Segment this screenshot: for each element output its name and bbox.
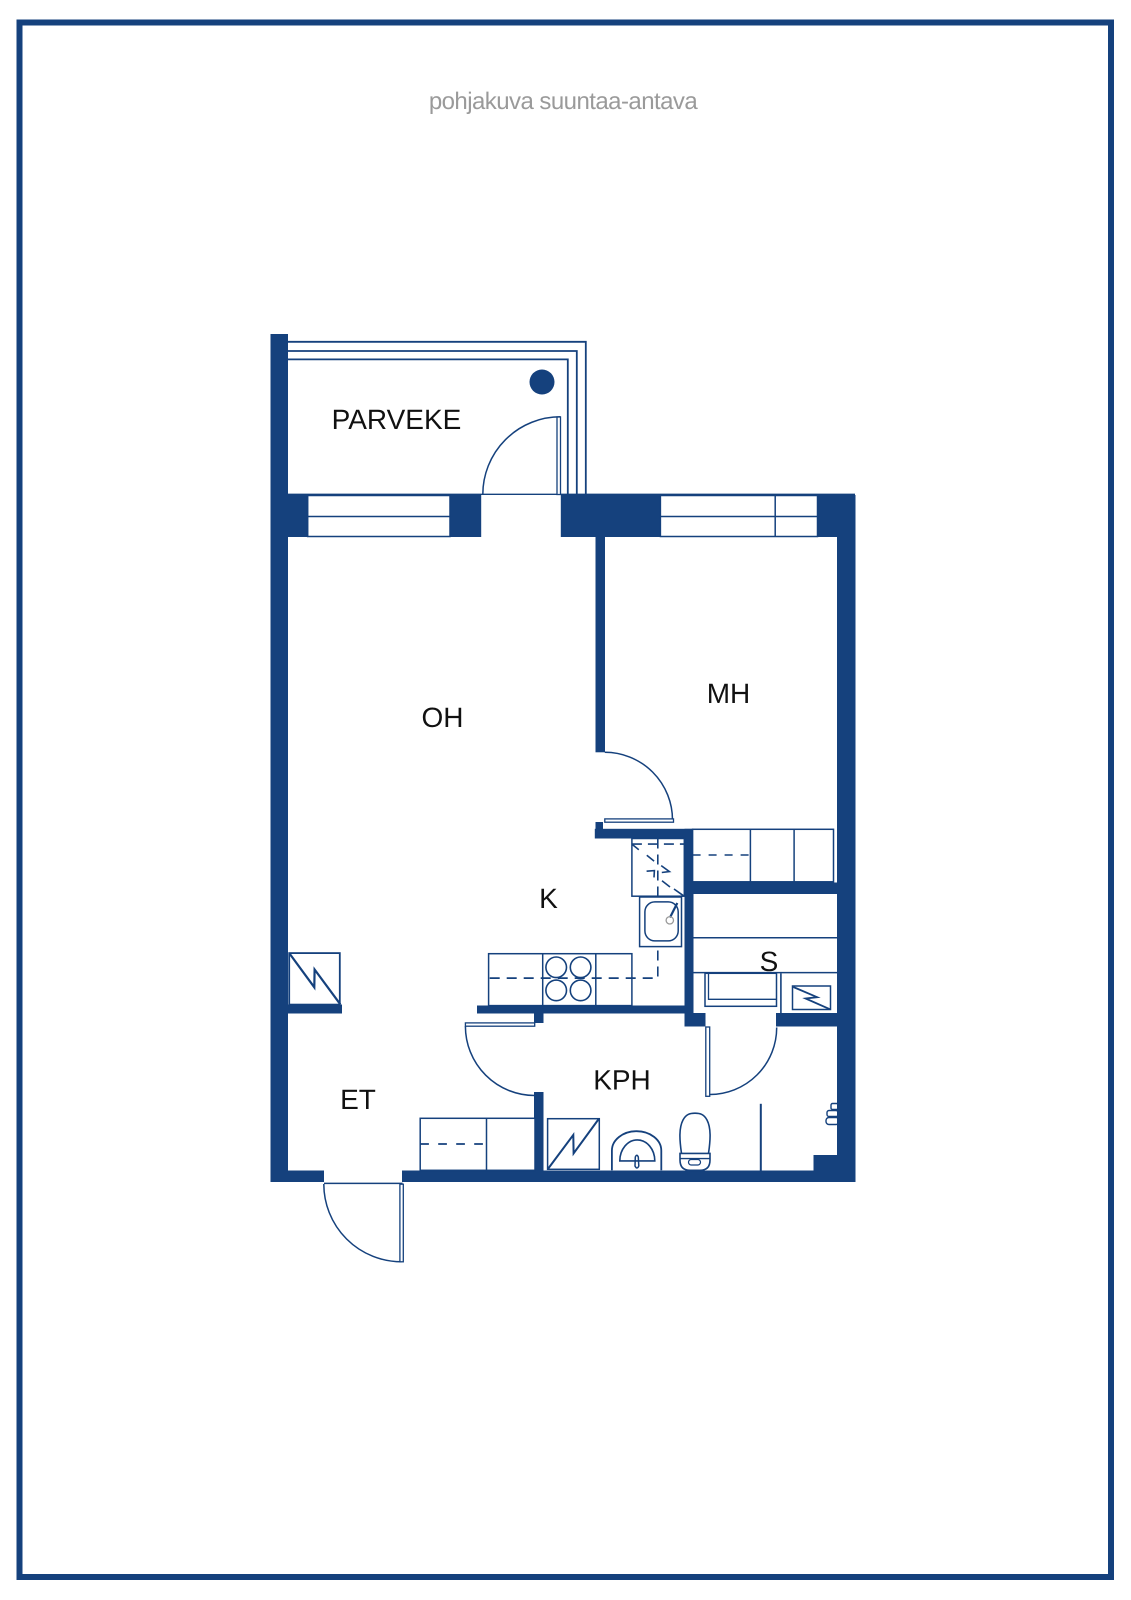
svg-text:K: K	[539, 883, 558, 914]
svg-text:KPH: KPH	[593, 1065, 651, 1096]
svg-text:OH: OH	[422, 702, 464, 733]
svg-text:ET: ET	[340, 1084, 376, 1115]
svg-text:PARVEKE: PARVEKE	[332, 404, 462, 435]
svg-text:pohjakuva suuntaa-antava: pohjakuva suuntaa-antava	[429, 88, 699, 115]
svg-text:MH: MH	[707, 678, 751, 709]
svg-text:S: S	[760, 946, 779, 977]
